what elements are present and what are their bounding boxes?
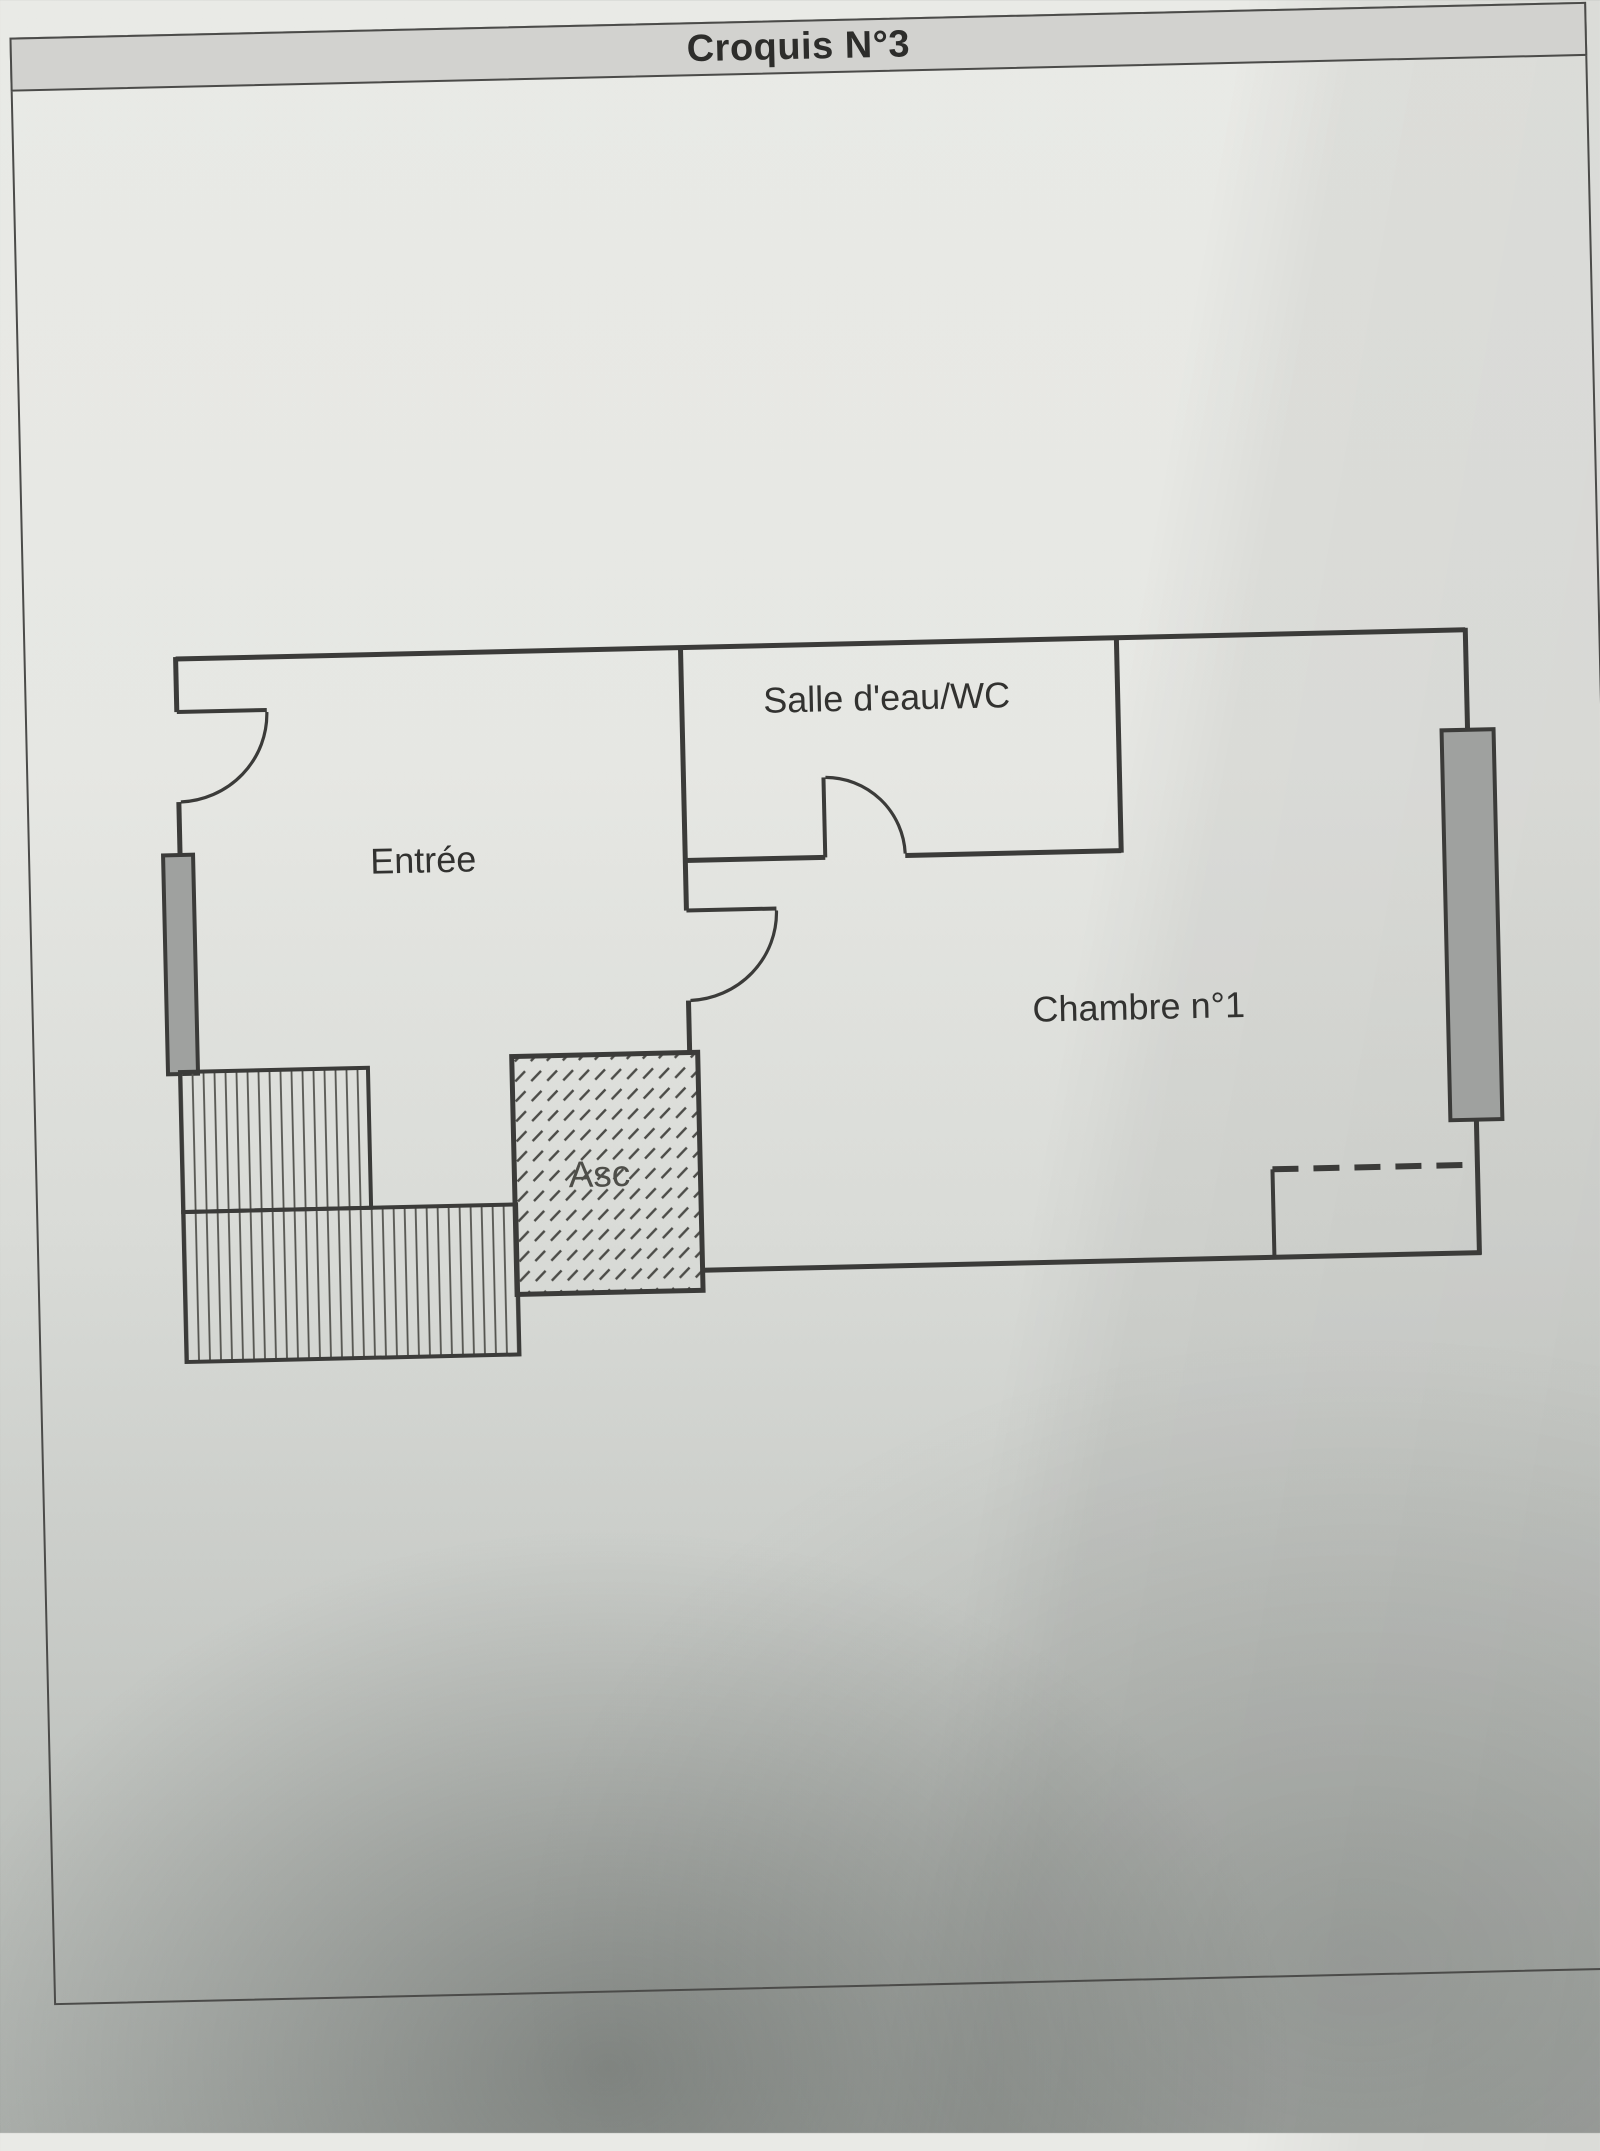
entrance-door-leaf: [177, 710, 267, 712]
left-wall-window: [163, 855, 198, 1075]
closet-left-edge: [1272, 1169, 1274, 1255]
entrance-door-arc: [179, 712, 269, 802]
right-wall-window: [1442, 729, 1503, 1120]
stair-flight-upper: [180, 1068, 371, 1212]
right-wall-upper: [1465, 628, 1467, 730]
salle-bottom-wall-right: [905, 851, 1121, 856]
photographed-document: { "document": { "title": "Croquis N°3" }…: [0, 0, 1600, 2133]
bathroom-door: [823, 776, 905, 858]
bottom-wall: [703, 1253, 1482, 1271]
right-wall-lower: [1476, 1120, 1479, 1255]
wall-below-passage-door: [688, 1001, 689, 1055]
salle-right-wall: [1116, 638, 1121, 853]
stair-flight-lower: [183, 1204, 519, 1362]
passage-door-leaf: [686, 908, 776, 910]
passage-door-arc: [688, 910, 778, 1000]
salle-bottom-wall-left: [685, 857, 825, 860]
left-wall-mid: [179, 802, 180, 855]
closet-dashed-top: [1272, 1165, 1474, 1170]
label-chambre: Chambre n°1: [1032, 984, 1245, 1031]
entree-salle-divider-wall: [680, 648, 686, 911]
bathroom-door-arc: [825, 776, 905, 856]
floor-plan-drawing: [0, 0, 1600, 2151]
label-salle-eau: Salle d'eau/WC: [763, 674, 1011, 722]
staircase: [180, 1065, 519, 1362]
label-entree: Entrée: [370, 838, 477, 882]
bedroom-passage-door: [686, 908, 778, 1000]
entrance-door: [177, 710, 269, 802]
bathroom-door-leaf: [823, 777, 825, 857]
left-wall-top: [176, 657, 177, 712]
closet-dashed-outline: [1272, 1165, 1476, 1256]
top-wall: [176, 630, 1466, 659]
paper-page: Croquis N°3: [0, 0, 1600, 2151]
label-ascenseur: Asc: [568, 1153, 631, 1196]
